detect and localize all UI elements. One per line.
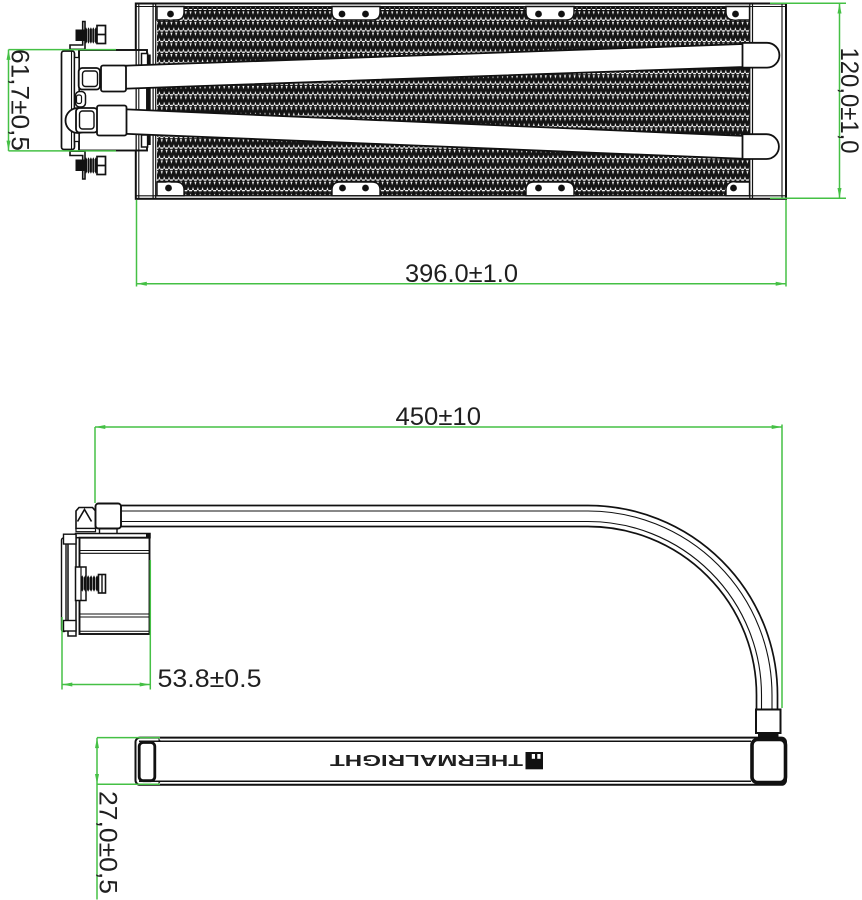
svg-text:53.8±0.5: 53.8±0.5 [158,665,262,693]
svg-text:450±10: 450±10 [396,403,482,431]
svg-text:120,0±1,0: 120,0±1,0 [835,48,862,154]
svg-text:THERMALRIGHT: THERMALRIGHT [329,751,523,768]
svg-text:61,7±0,5: 61,7±0,5 [6,49,34,151]
svg-text:396.0±1.0: 396.0±1.0 [405,260,518,288]
svg-text:27,0±0,5: 27,0±0,5 [94,791,122,894]
